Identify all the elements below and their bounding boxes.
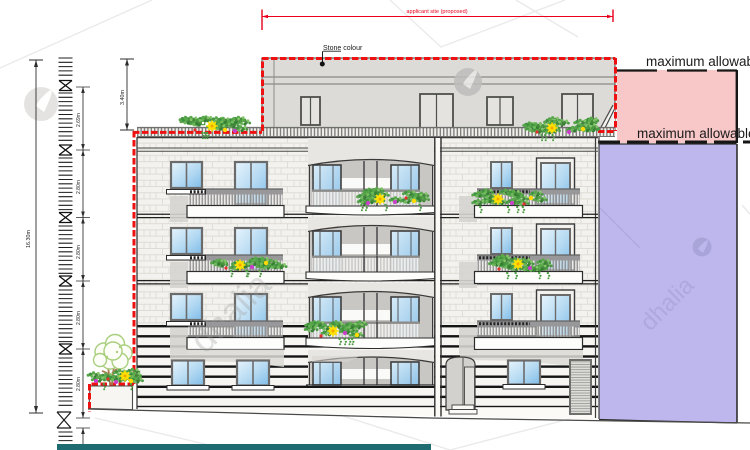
svg-text:applicant site (proposed): applicant site (proposed) <box>406 9 467 15</box>
svg-text:3.40m: 3.40m <box>120 90 126 105</box>
svg-text:2.80m: 2.80m <box>76 311 82 325</box>
svg-text:2.69m: 2.69m <box>76 113 82 127</box>
svg-text:2.80m: 2.80m <box>76 245 82 259</box>
svg-text:2.80m: 2.80m <box>76 377 82 391</box>
svg-text:16.30m: 16.30m <box>26 230 32 248</box>
svg-text:maximum allowable: maximum allowable <box>637 126 750 141</box>
svg-text:maximum allowable: maximum allowable <box>646 54 750 69</box>
svg-text:2.80m: 2.80m <box>76 180 82 194</box>
